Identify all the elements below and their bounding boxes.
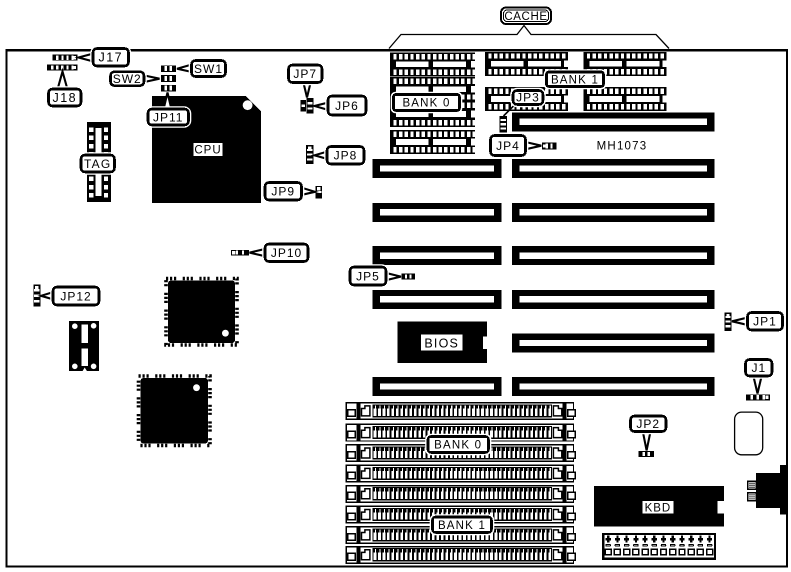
- svg-text:JP5: JP5: [356, 269, 380, 283]
- svg-text:JP10: JP10: [271, 246, 302, 260]
- svg-text:BANK 1: BANK 1: [551, 74, 599, 86]
- svg-text:SW1: SW1: [194, 62, 223, 76]
- svg-text:MH1073: MH1073: [597, 141, 648, 153]
- svg-text:TAG: TAG: [84, 157, 111, 171]
- svg-text:JP11: JP11: [153, 110, 183, 124]
- svg-text:SW2: SW2: [113, 72, 142, 86]
- svg-text:JP9: JP9: [271, 185, 295, 199]
- svg-text:CPU: CPU: [194, 145, 221, 157]
- svg-text:JP1: JP1: [753, 315, 777, 329]
- svg-text:JP8: JP8: [334, 149, 358, 163]
- svg-text:J1: J1: [751, 361, 766, 375]
- svg-text:JP6: JP6: [335, 99, 359, 113]
- svg-text:BIOS: BIOS: [424, 336, 459, 350]
- svg-text:KBD: KBD: [645, 502, 672, 514]
- svg-text:JP3: JP3: [516, 91, 540, 105]
- svg-text:JP4: JP4: [496, 139, 520, 153]
- svg-text:JP7: JP7: [293, 67, 317, 81]
- svg-text:BANK 0: BANK 0: [402, 98, 450, 110]
- svg-text:CACHE: CACHE: [504, 11, 547, 23]
- svg-text:BANK 0: BANK 0: [434, 440, 482, 452]
- svg-text:BANK 1: BANK 1: [438, 520, 486, 532]
- svg-text:J18: J18: [52, 91, 77, 105]
- svg-text:J17: J17: [98, 51, 123, 65]
- svg-text:JP2: JP2: [636, 417, 660, 431]
- svg-text:JP12: JP12: [60, 289, 91, 303]
